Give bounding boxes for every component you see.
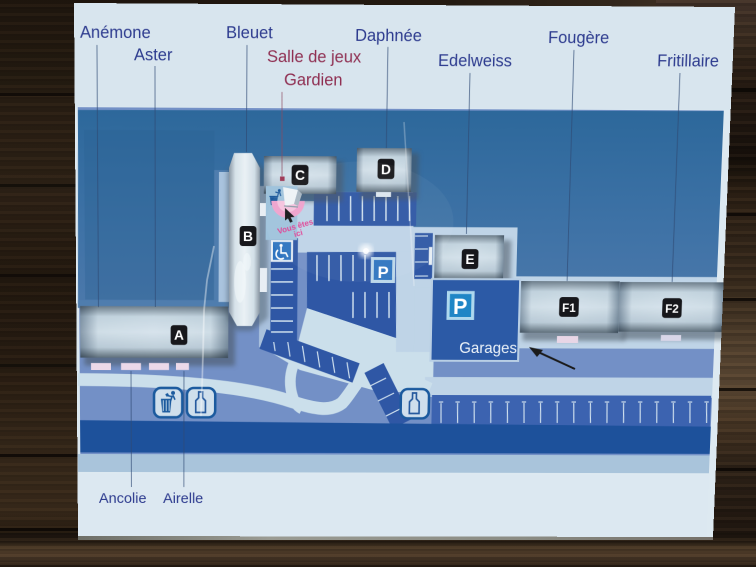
svg-text:E: E <box>465 252 474 268</box>
svg-text:B: B <box>243 229 253 245</box>
svg-text:Salle de jeux: Salle de jeux <box>267 47 362 67</box>
svg-text:Edelweiss: Edelweiss <box>438 51 512 70</box>
svg-text:Gardien: Gardien <box>284 70 343 89</box>
svg-text:F2: F2 <box>665 302 679 316</box>
svg-text:Aster: Aster <box>134 45 173 64</box>
svg-text:Anémone: Anémone <box>80 23 151 43</box>
svg-text:Bleuet: Bleuet <box>226 23 273 42</box>
svg-text:Garages: Garages <box>459 340 517 357</box>
svg-text:F1: F1 <box>562 301 576 315</box>
svg-text:Ancolie: Ancolie <box>99 491 147 507</box>
svg-text:Fritillaire: Fritillaire <box>657 51 719 70</box>
svg-text:A: A <box>174 328 184 343</box>
svg-text:Daphnée: Daphnée <box>355 26 422 46</box>
svg-text:Airelle: Airelle <box>163 491 203 507</box>
svg-text:P: P <box>453 295 468 319</box>
svg-text:Fougère: Fougère <box>548 28 610 47</box>
